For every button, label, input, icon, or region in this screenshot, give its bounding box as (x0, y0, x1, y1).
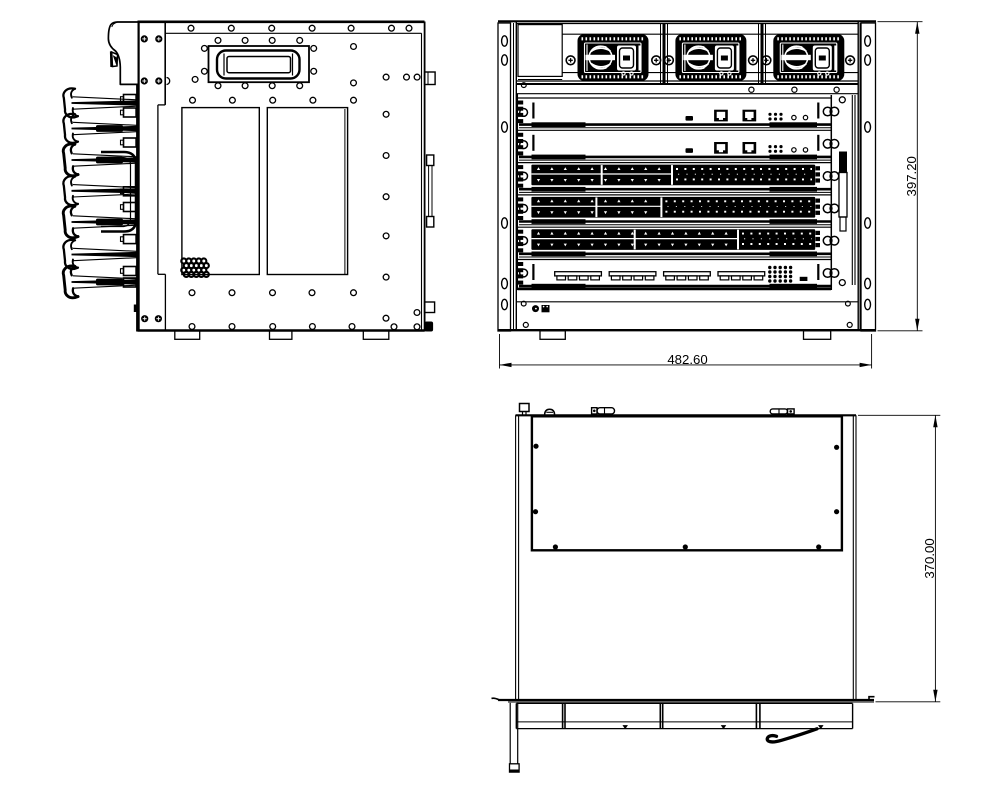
svg-text:482.60: 482.60 (667, 352, 707, 367)
svg-text:397.20: 397.20 (904, 156, 919, 196)
svg-text:370.00: 370.00 (922, 538, 937, 578)
